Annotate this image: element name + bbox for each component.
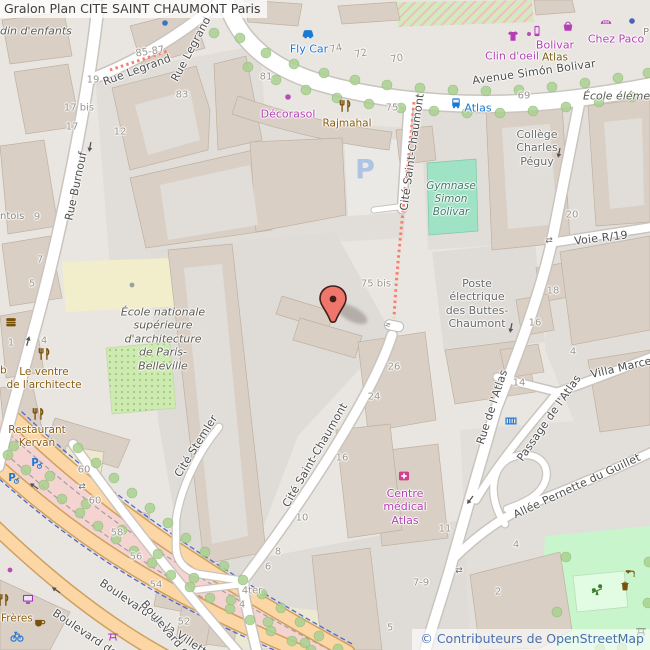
tree-icon [57,494,67,504]
tree-icon [225,604,235,614]
tree-icon [271,75,281,85]
tree-icon [481,86,491,96]
tree-icon [111,534,121,544]
tree-icon [166,570,176,580]
tree-icon [181,533,191,543]
tree-icon [382,80,392,90]
tree-icon [580,78,590,88]
tree-icon [301,85,311,95]
tree-icon [495,108,505,118]
tree-icon [145,503,155,513]
tree-icon [276,603,286,613]
tree-icon [561,102,571,112]
tree-icon [185,582,195,592]
tree-icon [75,508,85,518]
tree-icon [429,106,439,116]
tree-icon [245,615,255,625]
tree-icon [129,546,139,556]
tree-icon [117,525,127,535]
osm-attribution-link[interactable]: © Contributeurs de OpenStreetMap [412,629,650,650]
tree-icon [238,575,248,585]
tree-icon [287,636,297,646]
tree-icon [561,552,571,562]
tree-icon [39,480,49,490]
tree-icon [205,593,215,603]
map-title: Gralon Plan CITE SAINT CHAUMONT Paris [0,0,267,18]
tree-icon [514,85,524,95]
tree-icon [73,443,83,453]
tree-icon [189,573,199,583]
tree-icon [300,638,310,648]
tree-icon [289,59,299,69]
tree-icon [643,598,650,608]
map-canvas [0,0,650,650]
tree-icon [163,518,173,528]
tree-icon [350,75,360,85]
tree-icon [547,82,557,92]
tree-icon [448,85,458,95]
tree-icon [243,62,253,72]
tree-icon [643,68,650,78]
tree-icon [627,92,637,102]
tree-icon [200,547,210,557]
tree-icon [3,450,13,460]
tree-icon [93,521,103,531]
tree-icon [153,549,163,559]
tree-icon [257,589,267,599]
tree-icon [109,473,119,483]
tree-icon [127,488,137,498]
tree-icon [528,106,538,116]
tree-icon [613,73,623,83]
map-viewport[interactable]: Rue LegrandRue LegrandAvenue Simón Boliv… [0,0,650,650]
tree-icon [219,561,229,571]
tree-icon [81,499,91,509]
tree-icon [235,33,245,43]
tree-icon [9,441,19,451]
tree-icon [21,465,31,475]
tree-icon [594,97,604,107]
tree-icon [226,595,236,605]
tree-icon [295,617,305,627]
tree-icon [396,103,406,113]
tree-icon [147,558,157,568]
tree-icon [314,631,324,641]
tree-icon [261,48,271,58]
tree-icon [266,626,276,636]
tree-icon [364,99,374,109]
tree-icon [91,458,101,468]
tree-icon [319,68,329,78]
tree-icon [415,83,425,93]
tree-icon [552,607,562,617]
tree-icon [45,471,55,481]
tree-icon [332,93,342,103]
tree-icon [462,108,472,118]
tree-icon [209,28,219,38]
tree-icon [263,617,273,627]
